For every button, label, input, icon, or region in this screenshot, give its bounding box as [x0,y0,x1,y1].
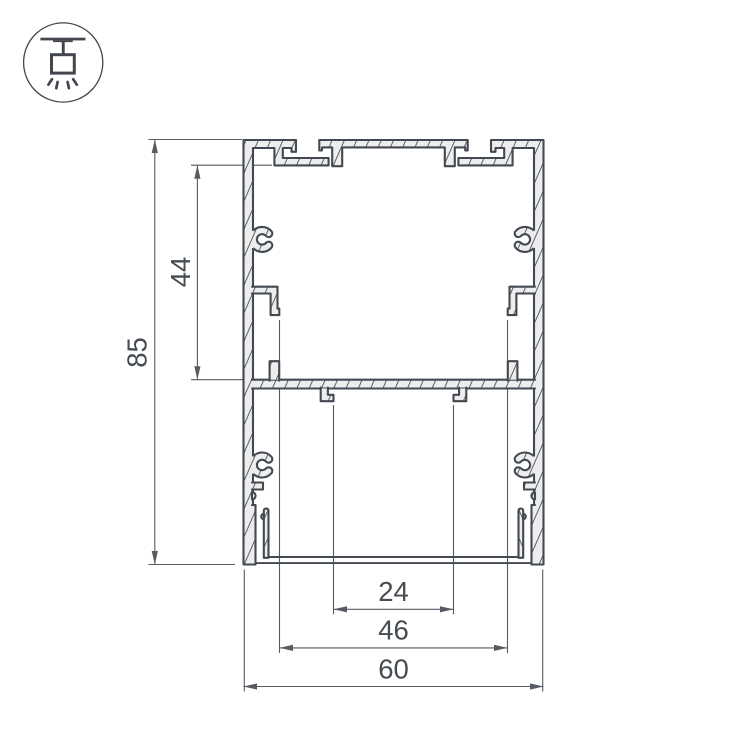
svg-text:85: 85 [122,337,153,368]
svg-text:44: 44 [165,257,196,288]
svg-text:24: 24 [378,576,409,607]
svg-text:46: 46 [378,615,409,646]
svg-text:60: 60 [378,653,409,684]
